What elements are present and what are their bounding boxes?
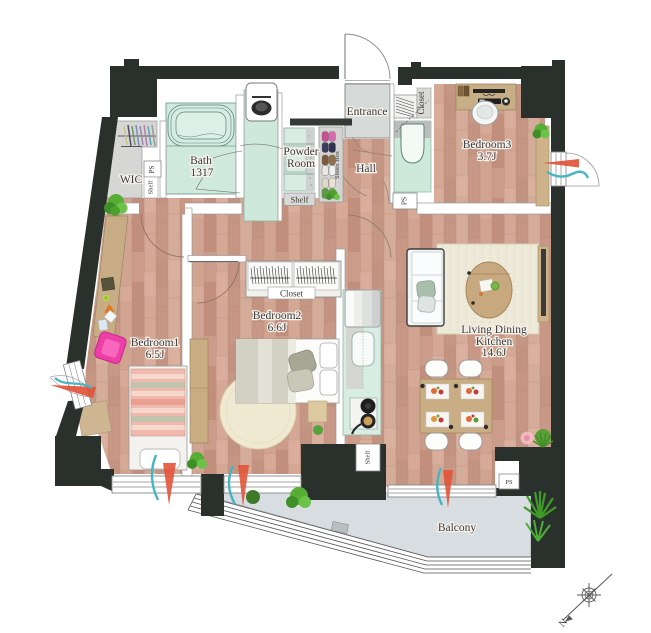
svg-text:Closet: Closet [416, 91, 426, 115]
svg-text:Hall: Hall [356, 163, 376, 175]
svg-text:Shelf: Shelf [364, 450, 371, 465]
svg-text:Shelf: Shelf [291, 195, 309, 205]
svg-text:6.6J: 6.6J [268, 322, 287, 334]
svg-text:Bedroom3: Bedroom3 [463, 139, 512, 151]
svg-text:PS: PS [400, 197, 409, 205]
svg-text:Entrance: Entrance [347, 106, 388, 118]
svg-text:6.5J: 6.5J [146, 349, 165, 361]
svg-text:PS: PS [505, 479, 513, 486]
svg-text:Living Dining: Living Dining [461, 324, 527, 336]
svg-text:3.7J: 3.7J [478, 151, 497, 163]
svg-text:WIC: WIC [120, 174, 143, 186]
svg-text:Closet: Closet [280, 289, 304, 299]
svg-text:Powder: Powder [283, 146, 318, 158]
svg-text:Room: Room [287, 158, 315, 170]
svg-text:Bedroom2: Bedroom2 [253, 310, 302, 322]
svg-text:PS: PS [148, 166, 156, 174]
svg-text:1317: 1317 [191, 167, 214, 179]
svg-text:Bedroom1: Bedroom1 [131, 337, 180, 349]
svg-text:Balcony: Balcony [438, 522, 477, 534]
svg-text:Shelf: Shelf [147, 180, 154, 195]
svg-text:Bath: Bath [190, 155, 212, 167]
svg-text:14.6J: 14.6J [482, 347, 507, 359]
